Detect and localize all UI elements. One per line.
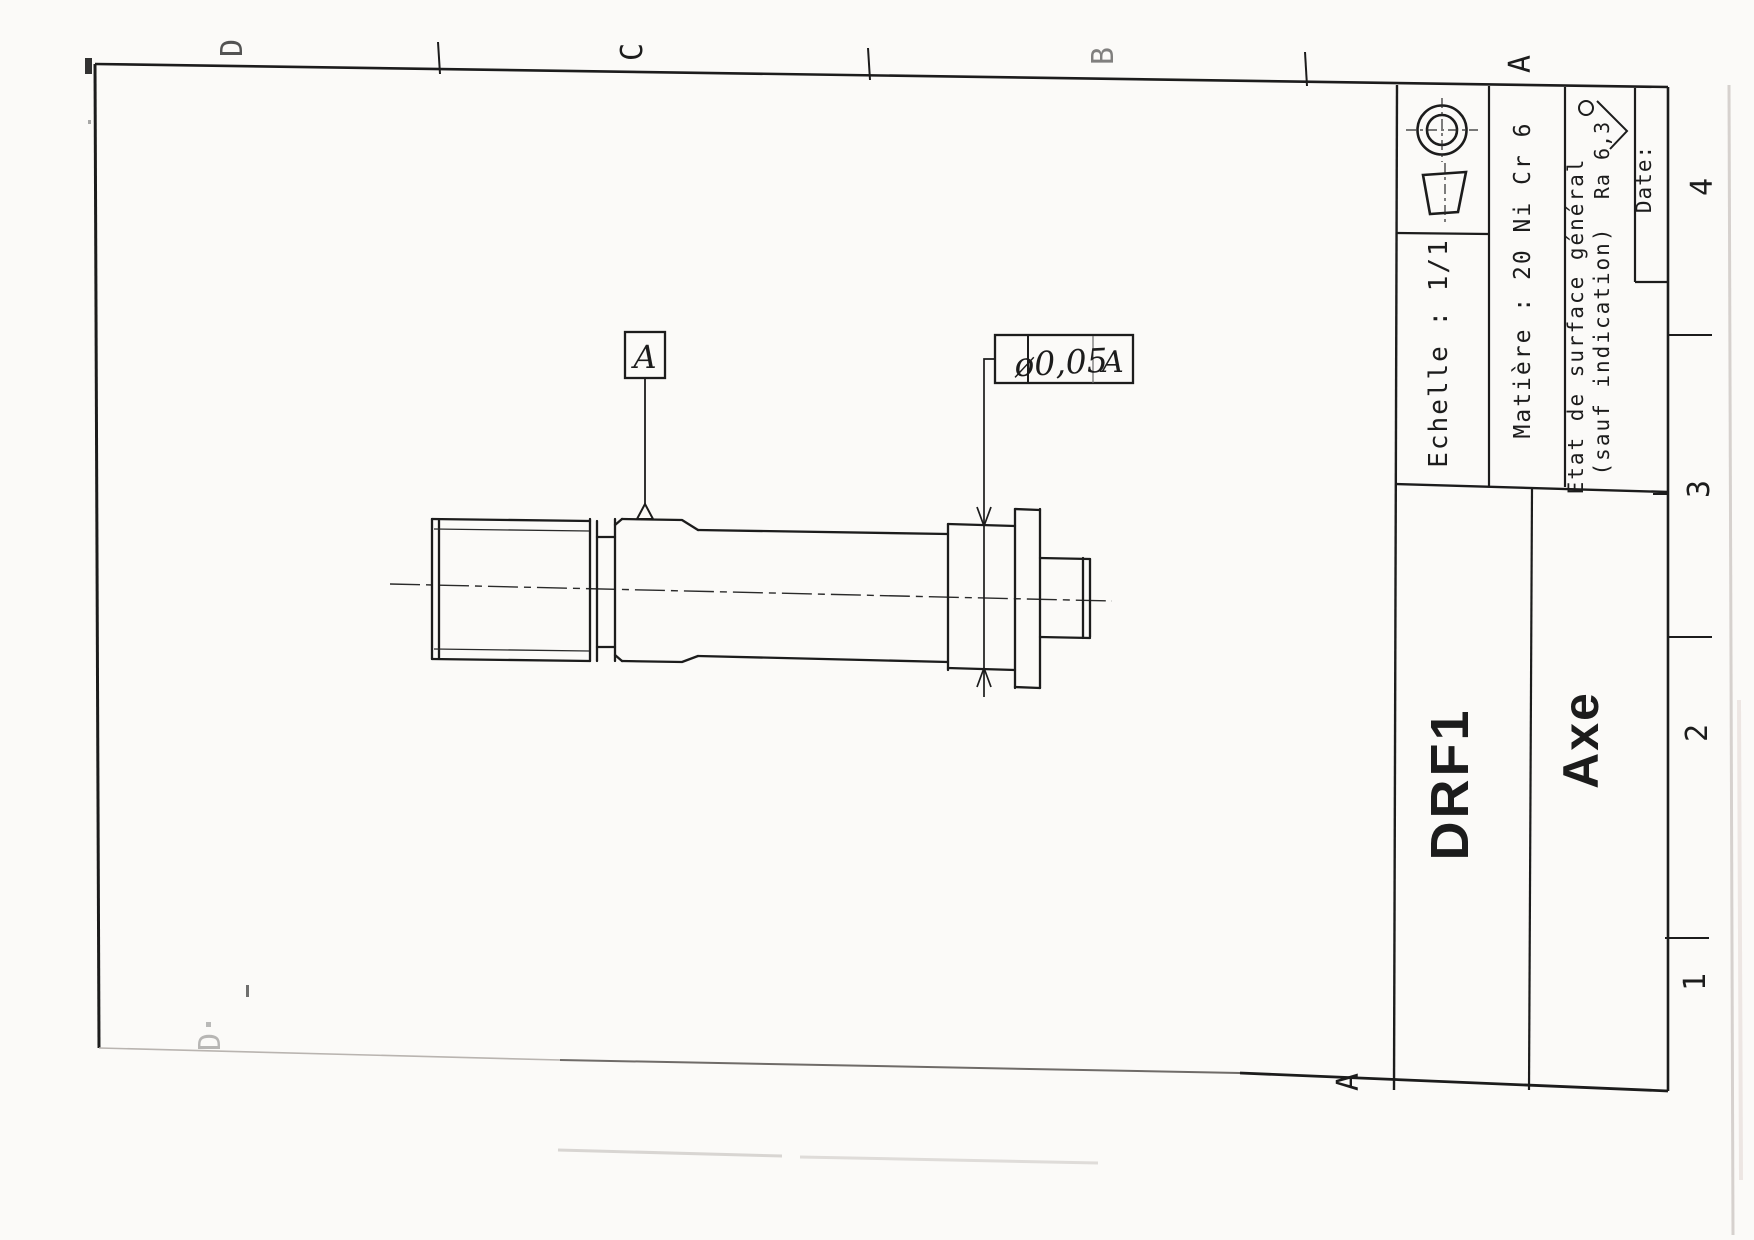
roughness-value: Ra 6,3: [1590, 121, 1614, 199]
zone-number-4: 4: [1685, 178, 1720, 196]
drawing-code: DRF1: [1420, 707, 1480, 860]
zone-letter-top-d: D: [215, 39, 250, 57]
tolerance-datum-ref: A: [1099, 345, 1124, 380]
material-label: Matière : 20 Ni Cr 6: [1510, 122, 1536, 439]
date-label: Date:: [1632, 145, 1656, 213]
paper-background: [0, 0, 1754, 1240]
zone-number-3: 3: [1682, 480, 1717, 498]
part-title: Axe: [1553, 691, 1609, 789]
surface-state-line1: Etat de surface général: [1564, 158, 1588, 495]
zone-number-2: 2: [1680, 724, 1715, 742]
zone-letter-bottom-a: A: [1331, 1073, 1366, 1091]
scale-label: Echelle : 1/1: [1424, 238, 1454, 468]
zone-letter-top-c: C: [615, 43, 650, 61]
scanned-sheet: D C B A 4 3 2 1 D A Ra 6,3 Echelle : 1/1: [0, 0, 1754, 1240]
zone-letter-bottom-d: D: [193, 1033, 228, 1051]
zone-number-1: 1: [1678, 973, 1713, 991]
surface-state-line2: (sauf indication): [1590, 227, 1614, 476]
zone-letter-top-b: B: [1086, 47, 1121, 65]
datum-a-label: A: [630, 338, 656, 376]
zone-letter-top-a: A: [1503, 55, 1538, 73]
drawing-sheet-svg: D C B A 4 3 2 1 D A Ra 6,3 Echelle : 1/1: [0, 0, 1754, 1240]
tolerance-diameter-value: ø0,05: [1012, 341, 1108, 385]
